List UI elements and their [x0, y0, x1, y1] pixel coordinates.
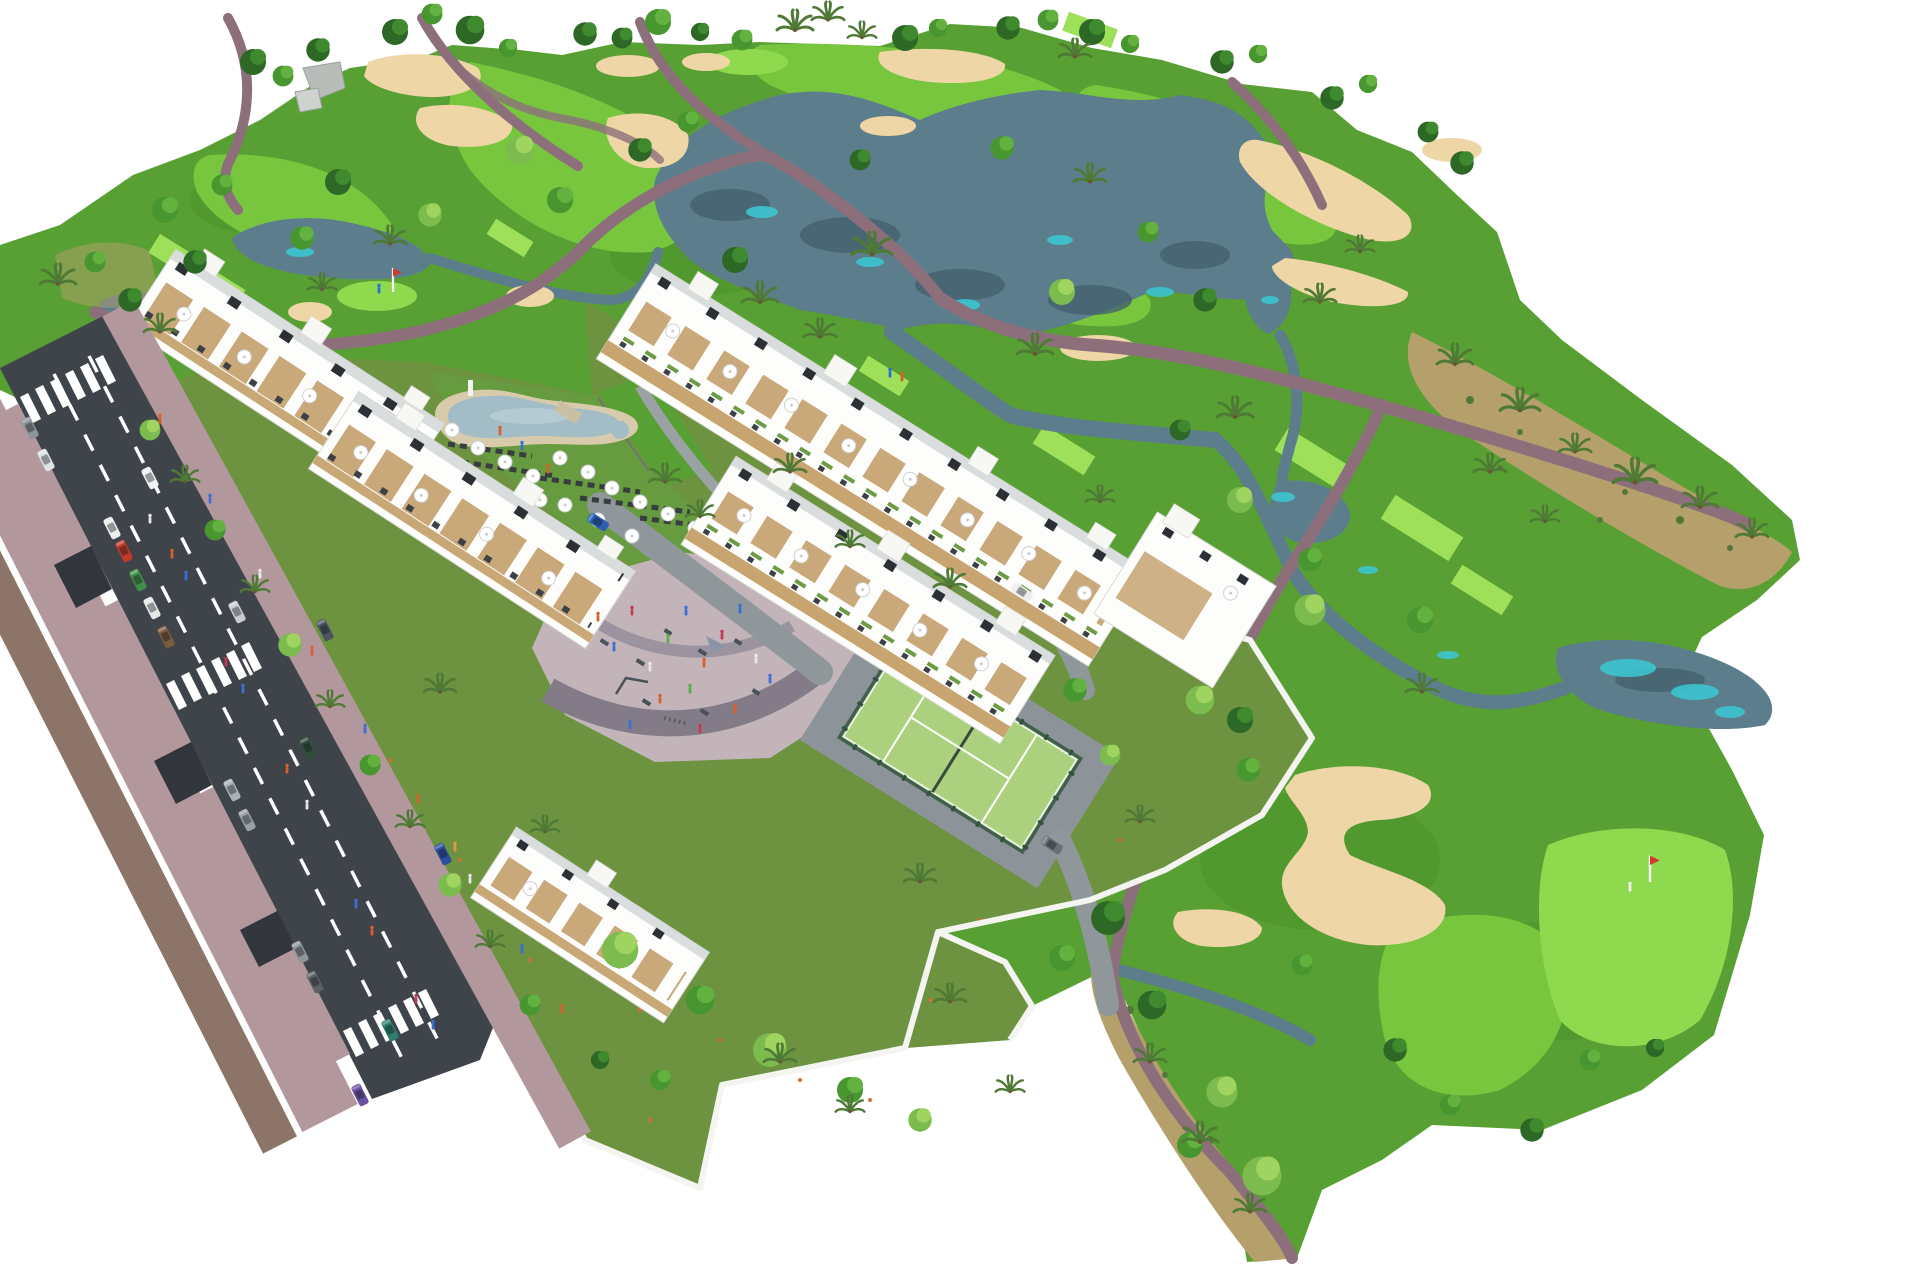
render-canvas: [0, 0, 1920, 1280]
masterplan-render: [0, 0, 1920, 1280]
